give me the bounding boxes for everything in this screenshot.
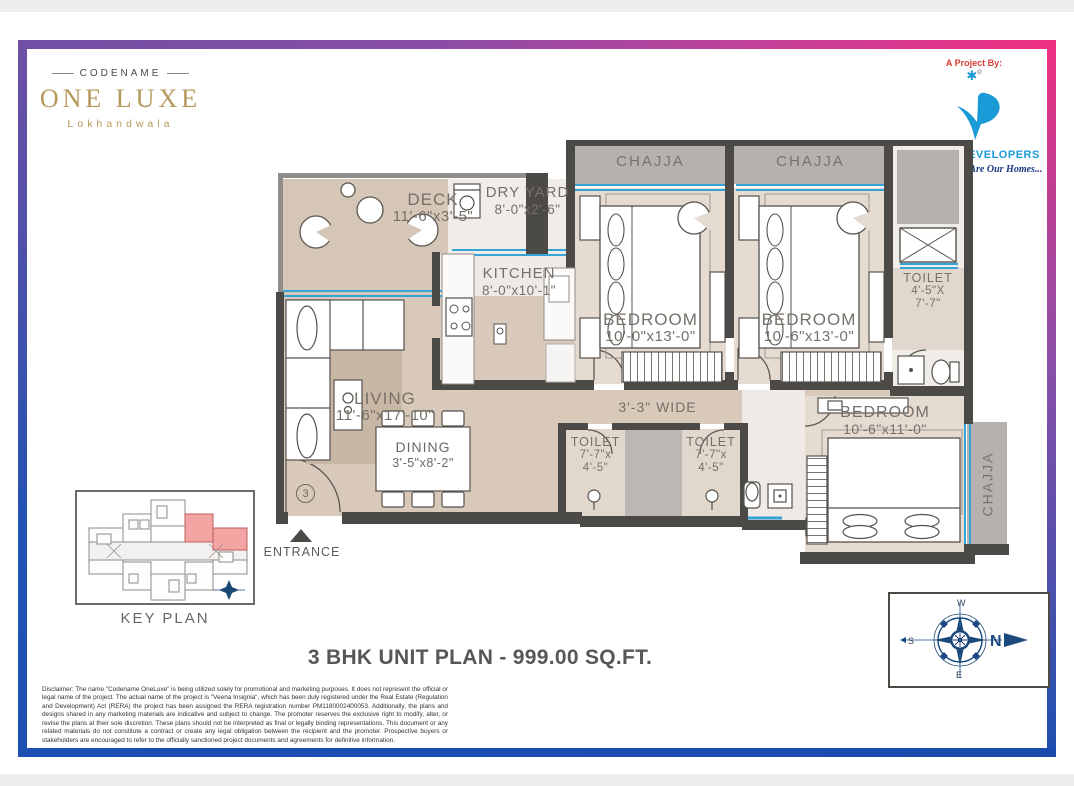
disclaimer-text: Disclaimer: The name "Codename OneLuxe" … xyxy=(42,686,448,745)
floor-plan: DECK 11'-6"x3'-5" DRY YARD 8'-0"x2'-6" K… xyxy=(270,140,1015,575)
brand-name: ONE LUXE xyxy=(38,84,203,114)
key-plan-label: KEY PLAN xyxy=(75,610,255,627)
key-plan-box xyxy=(75,490,255,605)
compass-east: E xyxy=(956,670,962,680)
toilet-top-label: TOILET 4'-5"X 7'-7" xyxy=(890,271,966,311)
gradient-border-top xyxy=(18,40,1056,49)
toilet-a-label: TOILET 7'-7"x 4'-5" xyxy=(566,435,625,475)
chajja-left-label: CHAJJA xyxy=(573,153,728,170)
key-plan-compass-icon xyxy=(213,580,245,600)
developer-star-icon: ✱® xyxy=(893,69,1055,82)
gradient-border-bottom xyxy=(18,748,1056,757)
kitchen-label: KITCHEN 8'-0"x10'-1" xyxy=(460,266,578,298)
rule-right xyxy=(167,73,189,74)
brand-logo: CODENAME ONE LUXE Lokhandwala xyxy=(38,68,203,130)
toilet-b-label: TOILET 7'-7"x 4'-5" xyxy=(682,435,740,475)
dining-label: DINING 3'-5"x8'-2" xyxy=(376,440,470,470)
rule-left xyxy=(52,73,74,74)
key-plan-graphics xyxy=(77,492,253,603)
living-label: LIVING 11'-6"x17'-10" xyxy=(306,389,464,425)
key-plan: KEY PLAN xyxy=(75,490,255,627)
compass-north: N xyxy=(990,633,1002,650)
compass: W S E N xyxy=(888,592,1050,688)
unit-number-badge: 3 xyxy=(296,484,315,503)
unit-plan-title: 3 BHK UNIT PLAN - 999.00 SQ.FT. xyxy=(240,646,720,670)
brochure-page: { "brand": { "codename": "CODENAME", "na… xyxy=(0,0,1074,786)
passage-label: 3'-3" WIDE xyxy=(600,399,715,415)
compass-south: S xyxy=(908,636,914,646)
project-by-label: A Project By: xyxy=(893,58,1055,68)
brand-location: Lokhandwala xyxy=(38,118,203,130)
bedroom2-label: BEDROOM 10'-6"x13'-0" xyxy=(734,310,884,346)
shaft-icon xyxy=(900,228,956,262)
chajja-side-label: CHAJJA xyxy=(967,422,1007,546)
entrance-label: ENTRANCE xyxy=(262,545,342,559)
entrance-arrow-icon xyxy=(290,529,312,542)
brand-codename: CODENAME xyxy=(80,68,162,79)
page-margin-bottom xyxy=(0,774,1074,786)
chajja-right-label: CHAJJA xyxy=(734,153,887,170)
developer-mark-icon xyxy=(945,82,1003,144)
brand-codename-row: CODENAME xyxy=(38,68,203,79)
bedroom1-label: BEDROOM 10'-0"x13'-0" xyxy=(575,310,726,346)
page-margin-top xyxy=(0,0,1074,12)
dry-yard-label: DRY YARD 8'-0"x2'-6" xyxy=(465,185,590,217)
compass-west: W xyxy=(957,598,966,608)
bedroom3-label: BEDROOM 10'-6"x11'-0" xyxy=(810,404,960,438)
gradient-border-left xyxy=(18,40,27,757)
compass-rose-icon: W S E N xyxy=(890,594,1044,682)
